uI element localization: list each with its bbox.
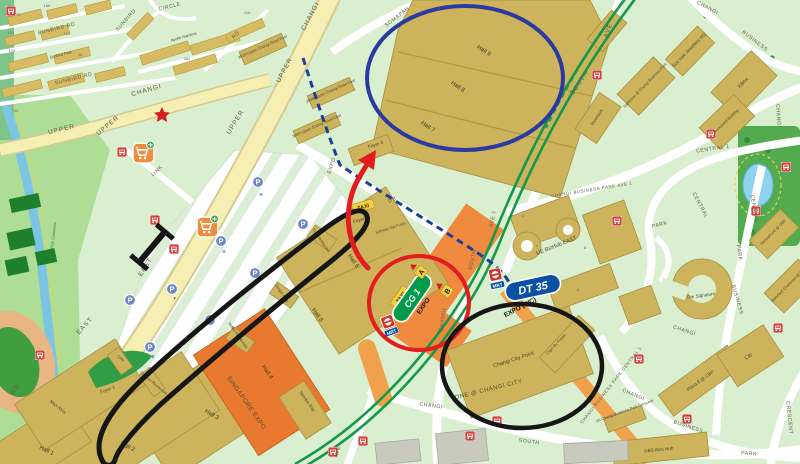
svg-text:173: 173: [14, 12, 21, 17]
svg-text:43: 43: [14, 108, 19, 113]
svg-text:561: 561: [184, 56, 191, 61]
svg-text:PARK: PARK: [741, 450, 758, 457]
street-map: P MRT: [0, 0, 800, 464]
svg-text:129: 129: [9, 48, 16, 53]
carpark-zone-e: E: [151, 354, 154, 359]
svg-text:131: 131: [8, 30, 15, 35]
svg-text:166: 166: [44, 3, 51, 8]
svg-text:48: 48: [78, 52, 83, 57]
svg-text:416: 416: [244, 10, 251, 15]
carpark-zone-g: G: [222, 249, 226, 254]
carpark-zone-h: H: [259, 192, 262, 197]
carpark-zone-f: F: [174, 296, 177, 301]
svg-text:101: 101: [64, 31, 71, 36]
